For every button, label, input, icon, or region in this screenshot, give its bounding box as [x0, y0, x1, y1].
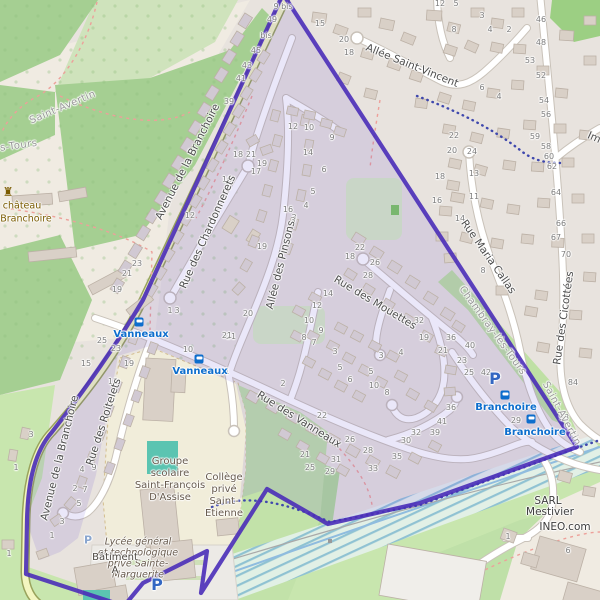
- map-tiles: [0, 0, 600, 600]
- map-canvas[interactable]: 9 bis49bis454341391210915201812538424648…: [0, 0, 600, 600]
